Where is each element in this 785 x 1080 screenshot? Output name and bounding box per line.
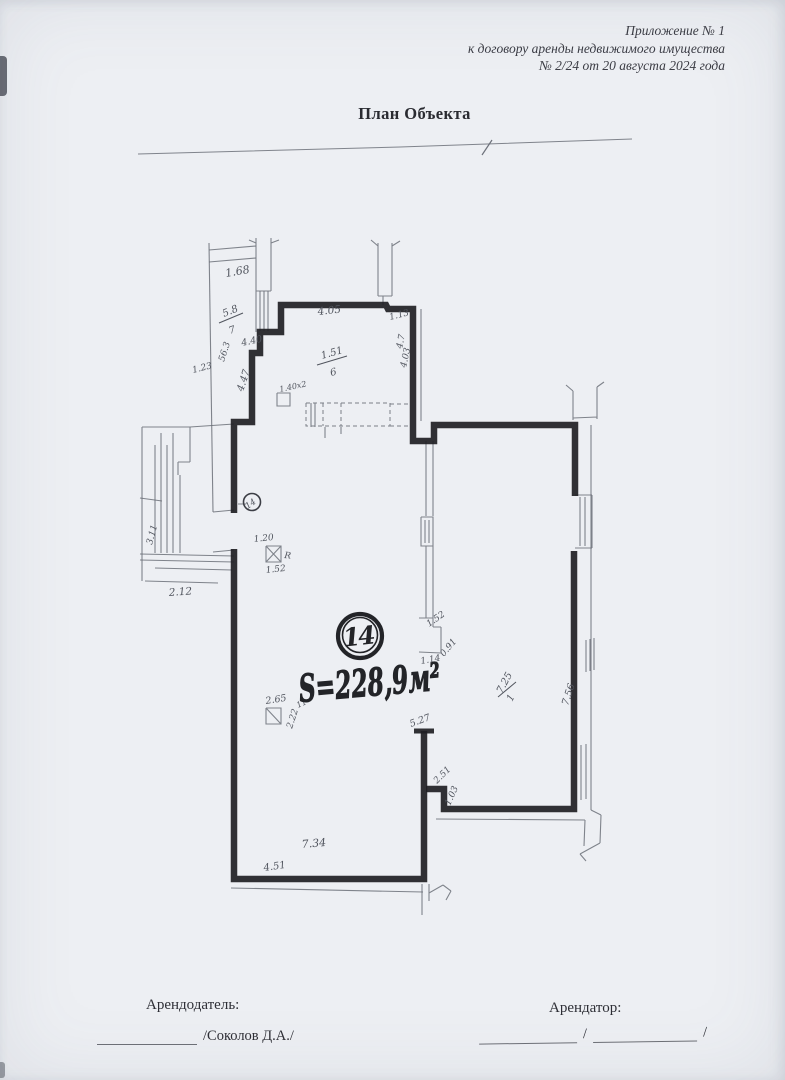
dimension-label: 7	[228, 324, 238, 337]
dimension-label: 3.11	[145, 524, 160, 546]
room-number: 14	[341, 620, 375, 652]
dimension-label: 1.52	[265, 564, 286, 576]
dimension-label: 5.8	[221, 304, 240, 320]
room-number-circle: 14	[338, 614, 382, 658]
signature-line	[97, 1029, 197, 1045]
title-underline	[138, 139, 632, 155]
dimension-label: R	[283, 551, 292, 562]
tenant-slash: /	[583, 1026, 587, 1043]
area-annotation: S=228,9м²	[297, 654, 442, 711]
dimension-label: 6	[329, 367, 338, 379]
dimension-label: 1.68	[224, 263, 250, 280]
tenant-label: Арендатор:	[549, 1000, 621, 1017]
dimension-label: 2.65	[264, 693, 288, 707]
dimension-label: 1	[505, 693, 518, 704]
small-circled-mark: 14	[244, 494, 261, 512]
landlord-label: Арендодатель:	[146, 997, 239, 1014]
dimension-label: 0.91	[439, 637, 460, 659]
floor-plan-drawing: 1.68 5.8 7 56.3 4.40 4.47 4.05 1.13 4.7 …	[0, 0, 785, 1080]
landlord-signature-row: /Соколов Д.А./	[97, 1028, 294, 1045]
dimension-label: 1.40х2	[279, 379, 308, 394]
dimension-label: 2.51	[431, 765, 453, 787]
tenant-signature-row: / /	[479, 1024, 707, 1044]
tenant-slash: /	[703, 1024, 707, 1041]
dashed-fixture-lines	[306, 403, 411, 426]
dimension-label: 7.34	[301, 836, 327, 851]
landlord-signature-name: /Соколов Д.А./	[203, 1028, 294, 1045]
dimension-label: 56.3	[217, 341, 233, 363]
dimension-label: 1.20	[253, 533, 274, 545]
dimension-label: 4.51	[262, 860, 287, 874]
thin-construction-lines	[140, 238, 604, 915]
dimension-label: 1.23	[191, 361, 213, 376]
signature-line	[593, 1026, 697, 1043]
dimension-label: 2.12	[167, 585, 192, 599]
scanned-document-page: Приложение № 1 к договору аренды недвижи…	[0, 0, 785, 1080]
dimension-label: 1.51	[320, 345, 344, 362]
signature-line	[479, 1027, 577, 1044]
dimension-label: 5.27	[408, 712, 433, 730]
dimension-label: 2.22	[285, 708, 301, 731]
dimension-label: 4.05	[316, 304, 342, 319]
